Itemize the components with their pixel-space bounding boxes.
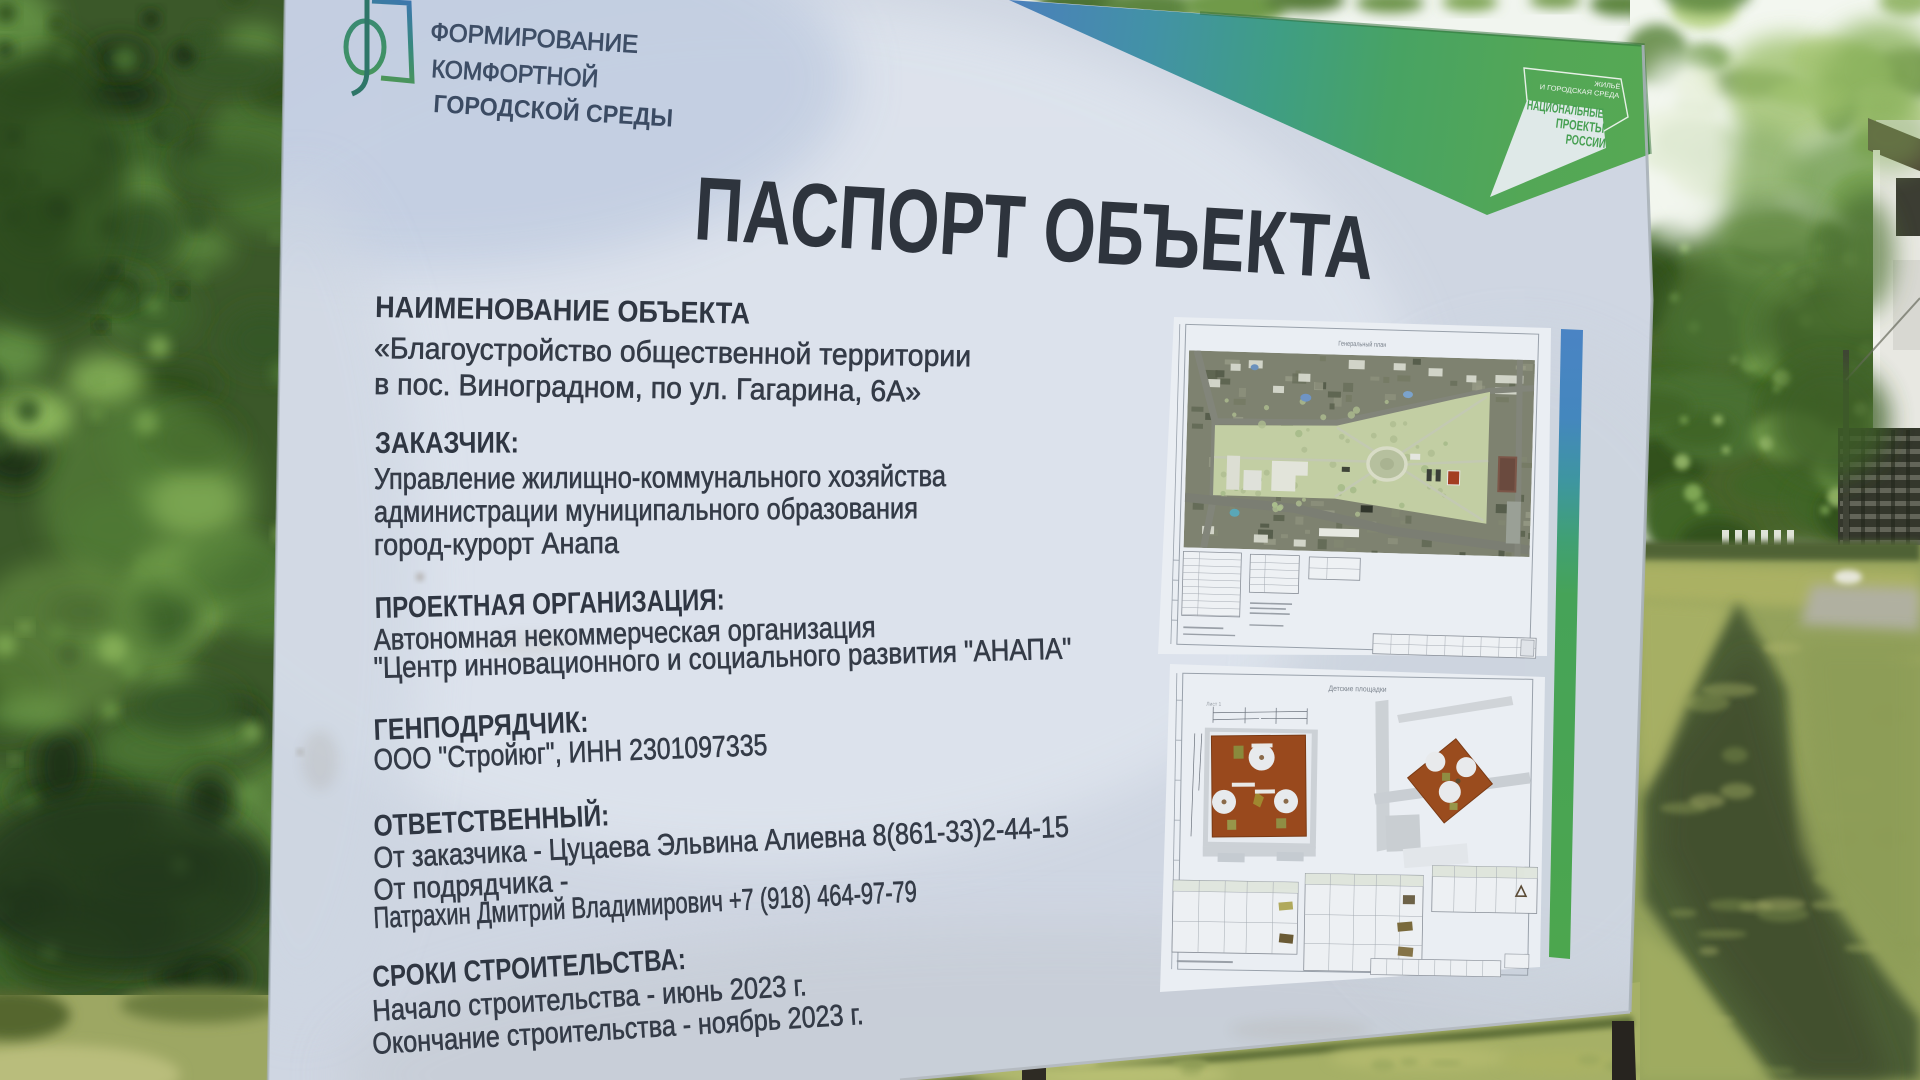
svg-text:администрации муниципального о: администрации муниципального образования — [374, 492, 918, 529]
svg-text:ЗАКАЗЧИК:: ЗАКАЗЧИК: — [375, 426, 519, 460]
svg-text:Детские площадки: Детские площадки — [1329, 684, 1387, 694]
svg-text:Управление жилищно-коммунально: Управление жилищно-коммунального хозяйст… — [374, 460, 946, 496]
svg-text:Лист 1: Лист 1 — [1206, 702, 1221, 708]
svg-text:город-курорт Анапа: город-курорт Анапа — [374, 527, 620, 562]
svg-text:Генеральный план: Генеральный план — [1338, 340, 1386, 349]
svg-text:НАИМЕНОВАНИЕ ОБЪЕКТА: НАИМЕНОВАНИЕ ОБЪЕКТА — [375, 291, 751, 331]
